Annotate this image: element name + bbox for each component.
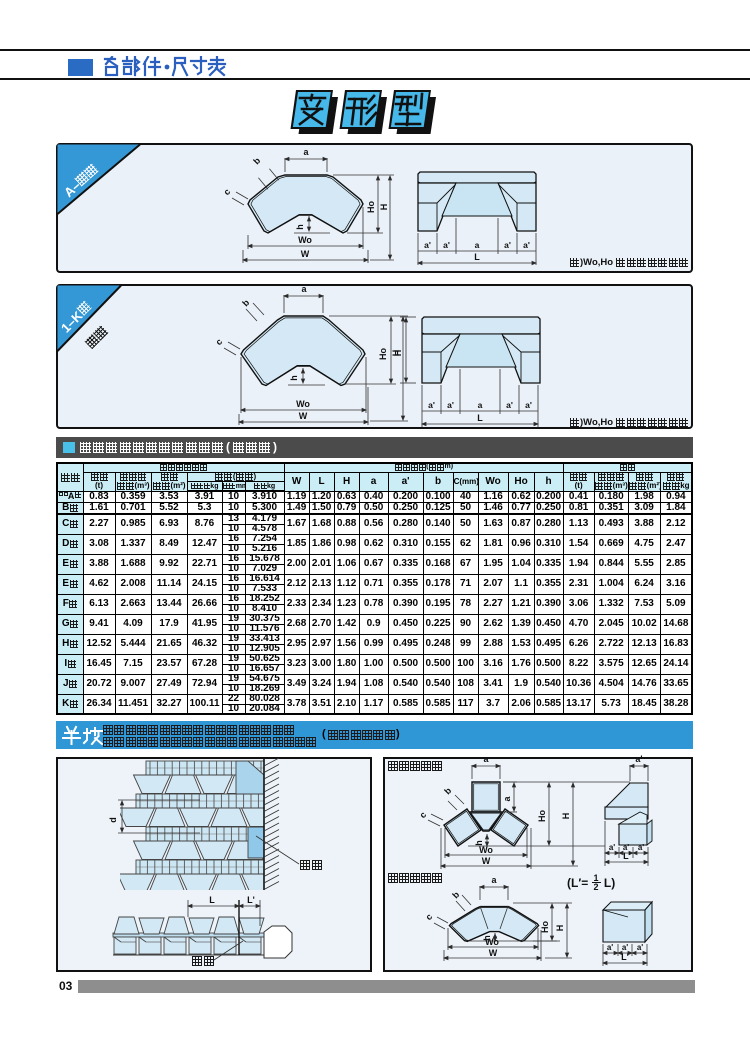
svg-text:H: H (555, 925, 565, 932)
svg-text:a': a' (635, 754, 642, 764)
svg-text:W: W (489, 948, 498, 958)
svg-text:a': a' (607, 943, 613, 952)
svg-text:Wo: Wo (485, 937, 499, 947)
svg-text:Ho: Ho (537, 810, 547, 822)
svg-text:L': L' (621, 952, 629, 962)
svg-text:H: H (561, 813, 571, 820)
svg-text:a': a' (609, 843, 615, 852)
svg-text:Ho: Ho (540, 921, 550, 933)
svg-text:a': a' (622, 943, 628, 952)
svg-text:W: W (482, 856, 491, 866)
svg-text:Wo: Wo (479, 845, 493, 855)
svg-text:a': a' (637, 943, 643, 952)
svg-text:a': a' (638, 843, 644, 852)
svg-text:L': L' (623, 851, 631, 861)
